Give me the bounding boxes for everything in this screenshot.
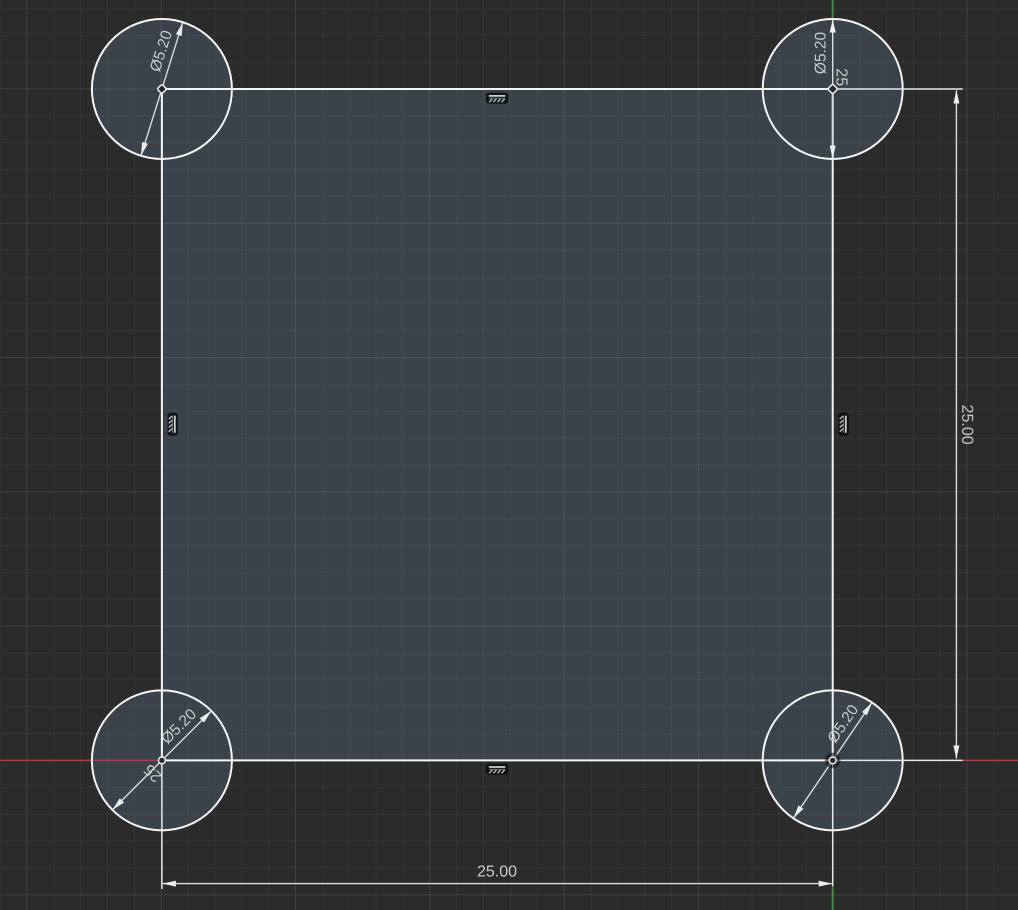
svg-text:Ø5.20: Ø5.20 <box>813 32 830 75</box>
svg-text:25.00: 25.00 <box>477 864 517 881</box>
svg-text:25: 25 <box>833 68 850 86</box>
svg-text:25.00: 25.00 <box>958 405 975 445</box>
